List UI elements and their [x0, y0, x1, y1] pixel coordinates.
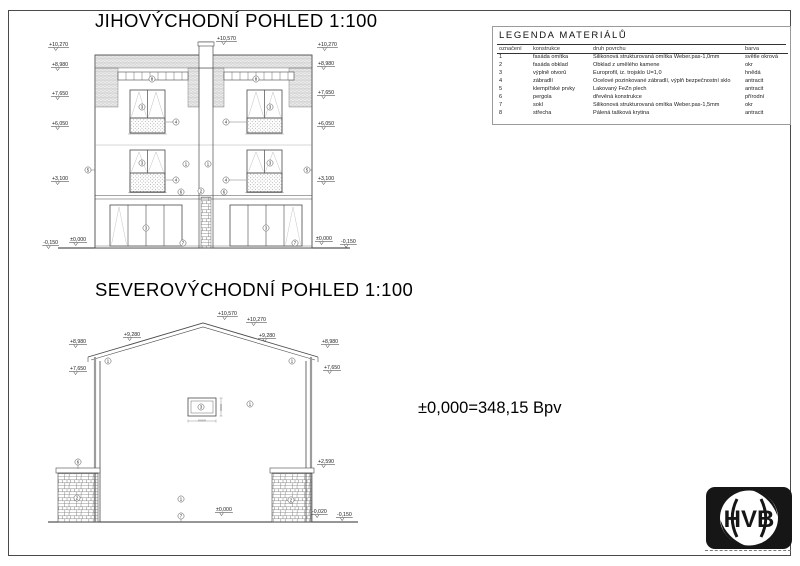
material-tag-railing: 4: [223, 119, 229, 125]
svg-text:+6,050: +6,050: [52, 121, 68, 127]
legend-cell: Silikonová strukturovaná omítka Weber.pa…: [591, 53, 743, 61]
legend-cell: Silikonová strukturovaná omítka Weber.pa…: [591, 102, 743, 110]
legend-header-cell: konstrukce: [531, 45, 591, 53]
legend-row: 5klempířské prvkyLakovaný FeZn plechantr…: [497, 86, 788, 94]
level-label: +7,650: [69, 366, 87, 375]
legend-cell: Lakovaný FeZn plech: [591, 86, 743, 94]
level-label: +3,100: [51, 176, 69, 185]
window-upper-right: [245, 90, 284, 134]
svg-text:+7,650: +7,650: [324, 365, 340, 371]
material-tag-window: 3: [143, 225, 149, 231]
legend-cell: světle okrová: [743, 53, 788, 61]
svg-text:+9,280: +9,280: [259, 333, 275, 339]
level-label: +9,280: [123, 332, 141, 341]
legend-cell: okr: [743, 62, 788, 70]
legend-cell: 2: [497, 62, 531, 70]
legend-cell: 7: [497, 102, 531, 110]
material-tag-roof: 8: [253, 76, 259, 82]
level-label: +3,100: [317, 176, 335, 185]
material-tag-plinth: 7: [292, 240, 298, 246]
svg-text:±0,000: ±0,000: [316, 236, 332, 242]
material-tag-window: 3: [139, 104, 145, 110]
legend-cell: dřevěná konstrukce: [591, 94, 743, 102]
legend-cell: sokl: [531, 102, 591, 110]
material-tag-plinth: 7: [180, 240, 186, 246]
svg-text:+10,270: +10,270: [49, 42, 68, 48]
logo-text: HVB: [724, 506, 775, 533]
legend-cell: 1: [497, 53, 531, 61]
svg-text:±0,000: ±0,000: [70, 237, 86, 243]
material-tag-facade: 1: [183, 161, 189, 167]
svg-text:-0,150: -0,150: [337, 512, 352, 518]
legend-row: 8střechaPálená tašková krytinaantracit: [497, 110, 788, 118]
svg-text:+10,270: +10,270: [247, 317, 266, 323]
level-label: ±0,000: [69, 237, 87, 246]
legend-cell: výplně otvorů: [531, 70, 591, 78]
material-tag-facade: 1: [247, 401, 253, 407]
material-tag-flashing: 5: [85, 167, 91, 173]
elevation1-drawing: +10,570 +10,270 +8,980 +7,650 +6,050 +3,…: [42, 36, 356, 249]
svg-text:+7,650: +7,650: [70, 366, 86, 372]
material-tag-facade: 1: [289, 358, 295, 364]
level-label: +10,270: [246, 317, 267, 326]
gable-roof: [88, 323, 318, 362]
legend-row: 4zábradlíOcelové pozinkované zábradlí, v…: [497, 78, 788, 86]
legend-table: označeníkonstrukcedruh povrchubarva 1fas…: [497, 45, 788, 118]
svg-text:+8,980: +8,980: [52, 62, 68, 68]
legend-row: 6pergoladřevěná konstrukcepřírodní: [497, 94, 788, 102]
material-tag-facade: 1: [205, 161, 211, 167]
svg-text:+10,270: +10,270: [318, 42, 337, 48]
level-label: +8,980: [51, 62, 69, 71]
material-tag-pergola: 6: [178, 189, 184, 195]
window-first-right: [245, 150, 284, 193]
legend-cell: pergola: [531, 94, 591, 102]
level-label: +10,570: [216, 36, 237, 45]
svg-text:+8,980: +8,980: [318, 61, 334, 67]
svg-text:+10,570: +10,570: [218, 311, 237, 317]
legend-cell: antracit: [743, 110, 788, 118]
legend-cell: Ocelové pozinkované zábradlí, výplň bezp…: [591, 78, 743, 86]
material-tag-window: 3: [263, 225, 269, 231]
material-tag-window: 3: [139, 160, 145, 166]
legend-row: 2fasáda obkladObklad z umělého kameneokr: [497, 62, 788, 70]
material-tag-cladding: 2: [74, 495, 80, 501]
svg-text:-0,150: -0,150: [341, 239, 356, 245]
svg-text:+2,590: +2,590: [318, 459, 334, 465]
level-label: +10,270: [317, 42, 338, 51]
material-tag-facade: 1: [105, 358, 111, 364]
level-label: +7,650: [323, 365, 341, 374]
material-tag-railing: 4: [173, 119, 179, 125]
legend-cell: přírodní: [743, 94, 788, 102]
svg-text:+7,650: +7,650: [318, 90, 334, 96]
svg-text:-0,020: -0,020: [312, 509, 327, 515]
material-tag-pergola: 6: [75, 459, 81, 465]
svg-text:+10,570: +10,570: [217, 36, 236, 42]
legend-row: 3výplně otvorůEuroprofil, iz. trojsklo U…: [497, 70, 788, 78]
material-tag-window: 3: [267, 160, 273, 166]
svg-text:-0,150: -0,150: [43, 240, 58, 246]
titleblock-dashed-line: [705, 550, 791, 551]
material-tag-railing: 4: [223, 177, 229, 183]
svg-text:+7,650: +7,650: [52, 91, 68, 97]
material-tag-pergola: 6: [221, 189, 227, 195]
elevation2-drawing: +10,570 +10,270 +9,280 +9,280 +8,980 +8,…: [48, 311, 358, 522]
svg-text:+6,050: +6,050: [318, 121, 334, 127]
legend-title: LEGENDA MATERIÁLŮ: [497, 29, 786, 45]
legend-cell: hnědá: [743, 70, 788, 78]
legend-row: 7soklSilikonová strukturovaná omítka Web…: [497, 102, 788, 110]
legend-cell: fasáda obklad: [531, 62, 591, 70]
svg-text:+8,980: +8,980: [322, 339, 338, 345]
level-label: +8,980: [317, 61, 335, 70]
level-label: +2,590: [317, 459, 335, 468]
legend-panel: LEGENDA MATERIÁLŮ označeníkonstrukcedruh…: [492, 26, 791, 125]
legend-table-head-row: označeníkonstrukcedruh povrchubarva: [497, 45, 788, 53]
legend-cell: Europrofil, iz. trojsklo U=1,0: [591, 70, 743, 78]
svg-text:±0,000: ±0,000: [216, 507, 232, 513]
svg-text:+3,100: +3,100: [52, 176, 68, 182]
level-label: +7,650: [51, 91, 69, 100]
hvb-logo: HVB: [706, 487, 792, 549]
legend-cell: 6: [497, 94, 531, 102]
legend-cell: střecha: [531, 110, 591, 118]
level-label: +10,270: [48, 42, 69, 51]
svg-text:+3,100: +3,100: [318, 176, 334, 182]
material-tag-window: 3: [198, 404, 204, 410]
window-first-left: [128, 150, 167, 193]
legend-header-cell: druh povrchu: [591, 45, 743, 53]
legend-header-cell: označení: [497, 45, 531, 53]
material-tag-plinth: 7: [178, 513, 184, 519]
svg-text:+9,280: +9,280: [124, 332, 140, 338]
legend-row: 1fasáda omítkaSilikonová strukturovaná o…: [497, 53, 788, 61]
legend-cell: 8: [497, 110, 531, 118]
material-tag-railing: 4: [173, 177, 179, 183]
level-label: +6,050: [51, 121, 69, 130]
chimney: [198, 42, 214, 68]
legend-cell: 4: [497, 78, 531, 86]
legend-table-body: 1fasáda omítkaSilikonová strukturovaná o…: [497, 53, 788, 117]
window-upper-left: [128, 90, 167, 134]
level-label: +7,650: [317, 90, 335, 99]
level-label: +8,980: [321, 339, 339, 348]
material-tag-roof: 8: [149, 76, 155, 82]
level-label: ±0,000: [315, 236, 333, 245]
level-label: +6,050: [317, 121, 335, 130]
legend-cell: okr: [743, 102, 788, 110]
legend-header-cell: barva: [743, 45, 788, 53]
legend-cell: antracit: [743, 86, 788, 94]
legend-cell: 3: [497, 70, 531, 78]
material-tag-flashing: 5: [304, 167, 310, 173]
gable-window: [188, 398, 223, 423]
legend-cell: fasáda omítka: [531, 53, 591, 61]
svg-text:+8,980: +8,980: [70, 339, 86, 345]
legend-cell: klempířské prvky: [531, 86, 591, 94]
level-label: -0,150: [336, 512, 353, 521]
material-tag-cladding: 2: [288, 497, 294, 503]
legend-cell: Obklad z umělého kamene: [591, 62, 743, 70]
stone-pillar-right: [270, 468, 314, 522]
level-label: -0,020: [311, 509, 328, 518]
legend-cell: 5: [497, 86, 531, 94]
material-tag-cladding: 2: [198, 188, 204, 194]
material-tag-window: 3: [267, 104, 273, 110]
level-label: +8,980: [69, 339, 87, 348]
material-tag-facade: 1: [178, 496, 184, 502]
level-label: -0,150: [340, 239, 357, 248]
legend-cell: Pálená tašková krytina: [591, 110, 743, 118]
level-label: ±0,000: [215, 507, 233, 516]
legend-cell: antracit: [743, 78, 788, 86]
legend-cell: zábradlí: [531, 78, 591, 86]
level-label: +10,570: [217, 311, 238, 320]
level-label: -0,150: [42, 240, 59, 249]
